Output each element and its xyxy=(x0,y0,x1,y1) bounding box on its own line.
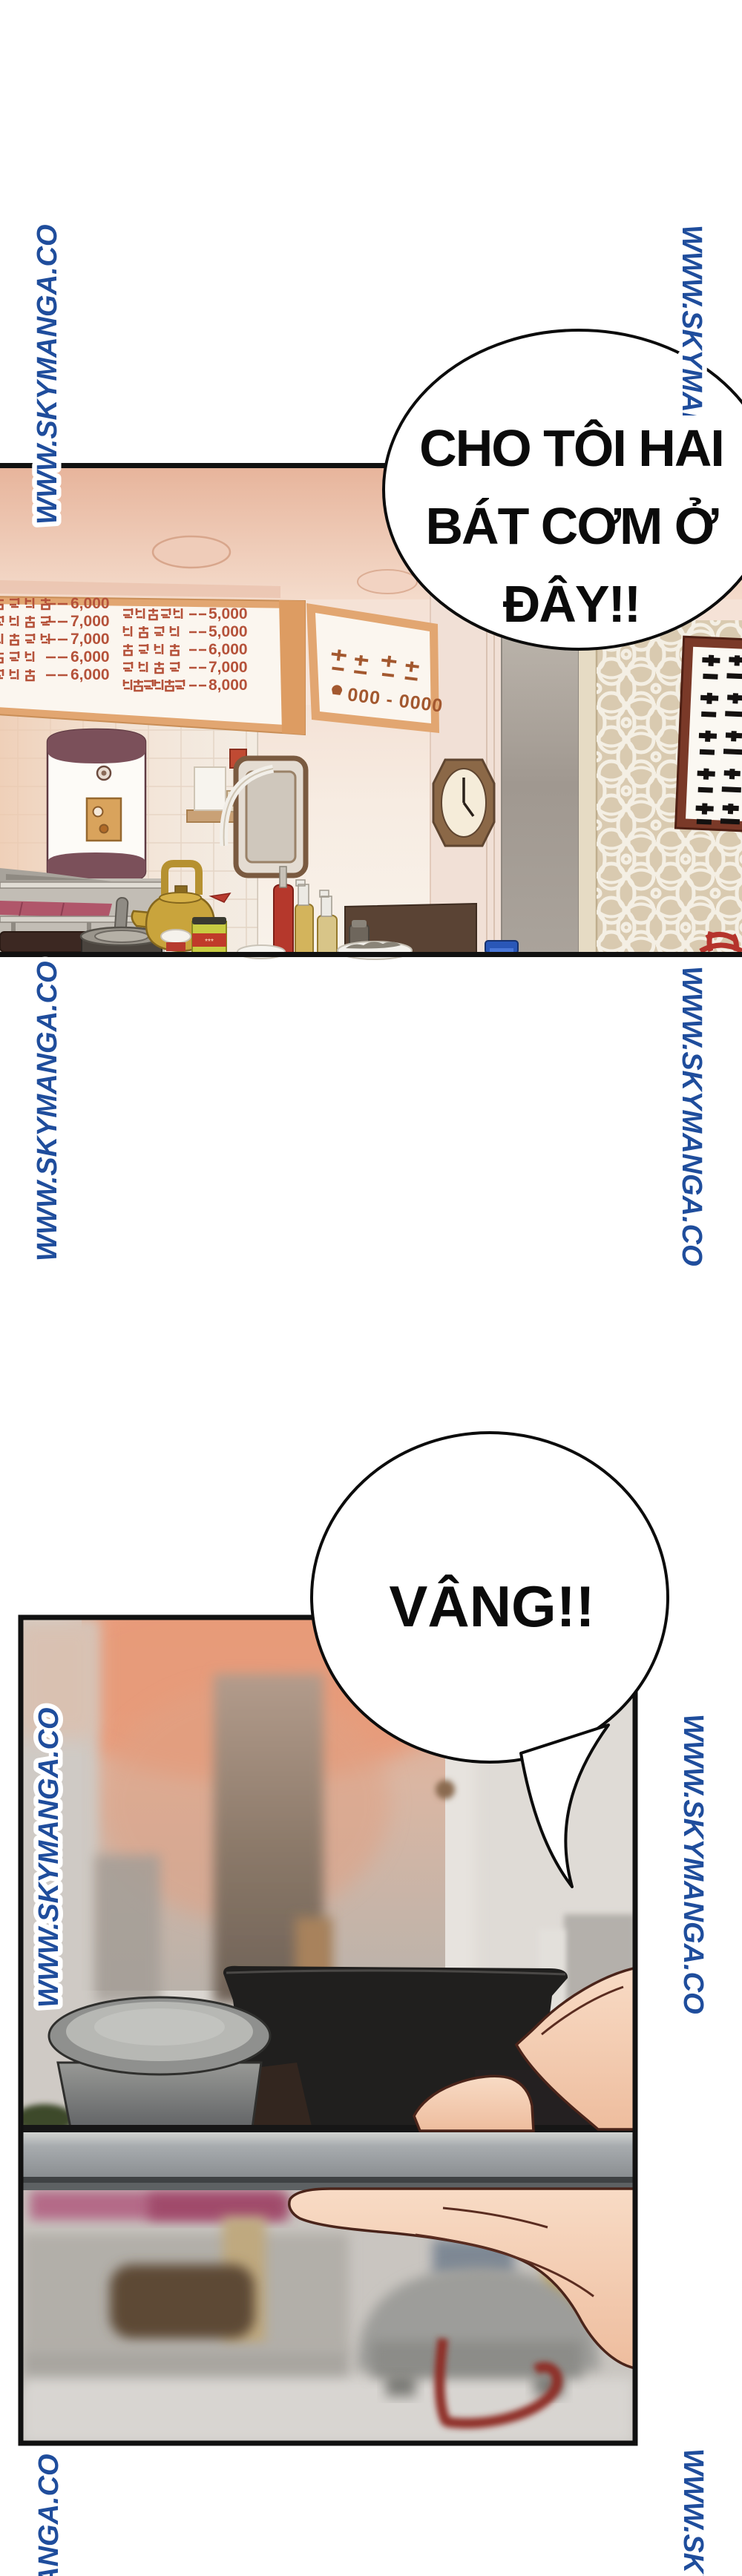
svg-text:WWW.SKYMANGA.CO: WWW.SKYMANGA.CO xyxy=(33,1707,65,2008)
svg-text:WWW.SKYMANGA.CO: WWW.SKYMANGA.CO xyxy=(32,224,63,525)
svg-text:CHO TÔI HAI: CHO TÔI HAI xyxy=(419,418,723,477)
svg-text:7,000: 7,000 xyxy=(70,613,110,630)
svg-text:WWW.SKYMANGA.CO: WWW.SKYMANGA.CO xyxy=(32,961,63,1261)
svg-text:8,000: 8,000 xyxy=(209,677,248,694)
svg-text:5,000: 5,000 xyxy=(209,623,248,640)
svg-text:5,000: 5,000 xyxy=(209,605,248,622)
svg-text:WWW.SKYMANGA.CO: WWW.SKYMANGA.CO xyxy=(676,966,707,1266)
svg-text:***: *** xyxy=(205,938,214,946)
svg-text:7,000: 7,000 xyxy=(70,631,110,648)
svg-text:7,000: 7,000 xyxy=(209,659,248,676)
svg-text:6,000: 6,000 xyxy=(70,648,110,666)
svg-text:6,000: 6,000 xyxy=(70,666,110,683)
svg-text:WWW.SKYMANGA.CO: WWW.SKYMANGA.CO xyxy=(677,2448,709,2576)
svg-text:ĐÂY!!: ĐÂY!! xyxy=(503,574,640,633)
svg-text:BÁT CƠM Ở: BÁT CƠM Ở xyxy=(425,496,718,555)
svg-text:WWW.SKYMANGA.CO: WWW.SKYMANGA.CO xyxy=(33,2454,65,2576)
svg-text:VÂNG!!: VÂNG!! xyxy=(389,1574,594,1639)
svg-text:6,000: 6,000 xyxy=(209,641,248,658)
svg-text:6,000: 6,000 xyxy=(70,595,110,612)
svg-text:WWW.SKYMANGA.CO: WWW.SKYMANGA.CO xyxy=(677,1714,709,2014)
